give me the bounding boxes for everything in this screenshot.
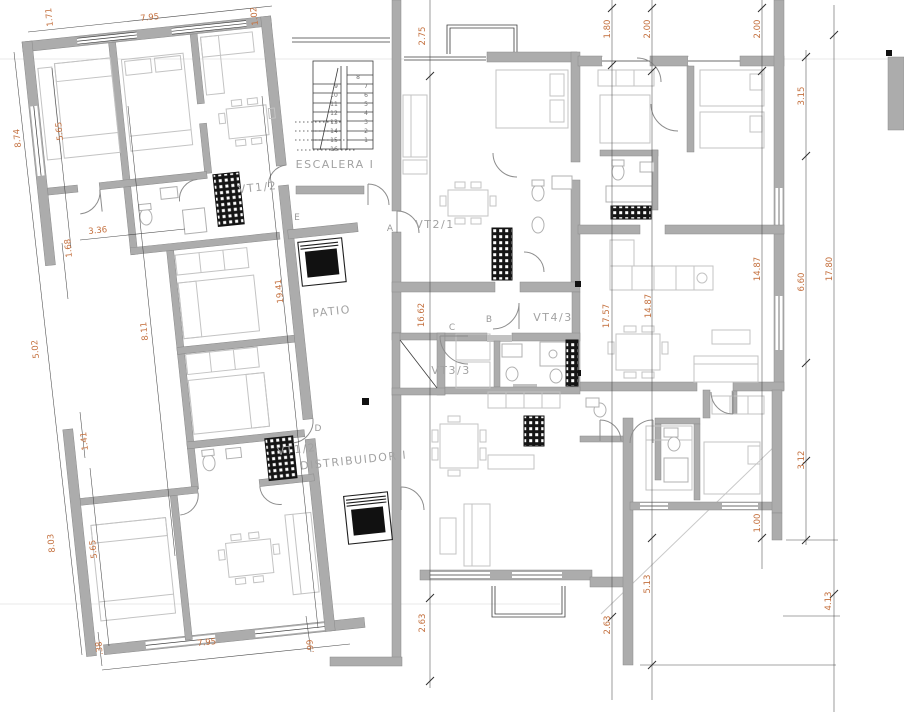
dimension-label: 5.65: [88, 539, 100, 559]
furniture-upper-unit: [36, 30, 277, 166]
dimension-label: 1.68: [63, 238, 75, 258]
dimension-label: 8.03: [46, 533, 58, 553]
stair-number: 9: [334, 83, 338, 90]
stair-number: 13: [330, 119, 338, 126]
dimension-label: 1.80: [603, 20, 613, 39]
dimension-label: 7.95: [140, 12, 160, 24]
stair-number: 8: [356, 74, 360, 81]
stair-number: 3: [364, 119, 368, 126]
room-label-vt12-upper: VT1/2: [237, 179, 278, 196]
kitchen-appliances-top-right: [611, 206, 651, 219]
door-letter-e: E: [294, 213, 300, 223]
dimension-label: 3.36: [88, 225, 108, 237]
dimension-label: 3.12: [797, 451, 807, 470]
stair-number: 2: [364, 128, 368, 135]
dimension-label: 2.00: [643, 20, 653, 39]
dimension-label: 8.11: [139, 321, 151, 341]
dimension-label: 7.95: [197, 637, 217, 649]
dimension-label: 1.71: [44, 7, 56, 27]
dimension-label: 2.00: [753, 20, 763, 39]
stair-number: 6: [364, 92, 368, 99]
stair-numbers: 8 7 6 5 4 3 2 1 9 10 11 12 13 14 15 16: [330, 74, 368, 153]
right-wing-furniture: [403, 70, 764, 566]
dimension-label: 1.41: [79, 431, 91, 451]
dimension-label: 17.80: [825, 257, 835, 281]
stair-number: 12: [330, 110, 338, 117]
dimension-label: 1.02: [249, 6, 261, 26]
stair-number: 5: [364, 101, 368, 108]
dimension-label: 5.02: [30, 339, 42, 359]
dimension-label: 14.87: [753, 257, 763, 281]
bath-bottom-centre: [586, 398, 606, 417]
dimension-label: 1.00: [753, 514, 763, 533]
bath-lower-unit: [202, 446, 243, 471]
dimension-label: 19.41: [274, 279, 286, 304]
dimension-label: 5.65: [54, 121, 66, 141]
dimension-label: 8.74: [12, 128, 24, 148]
room-label-vt43: VT4/3: [533, 311, 572, 324]
bath-vt33: [502, 342, 566, 383]
bath-top-right: [606, 160, 654, 202]
stair-number: 16: [330, 146, 338, 153]
stair-number: 14: [330, 128, 338, 135]
door-letter-b: B: [486, 315, 492, 325]
dimension-label: 2.63: [418, 614, 428, 633]
central-core: [288, 0, 445, 666]
dimension-label: 2.75: [418, 27, 428, 46]
kitchen-appliances-upper: [213, 172, 244, 226]
dimension-label: .38: [94, 641, 105, 656]
bath-bottom-right: [664, 428, 688, 482]
stair-number: 10: [330, 92, 338, 99]
dimension-label: 6.60: [797, 273, 807, 292]
floor-plan-canvas: 8 7 6 5 4 3 2 1 9 10 11 12 13 14 15 16: [0, 0, 904, 714]
dimension-label: .99: [305, 639, 316, 654]
door-letter-a: A: [387, 224, 394, 234]
furniture-lower-unit: [91, 502, 320, 620]
stair-number: 4: [364, 110, 368, 117]
door-letter-d: D: [315, 424, 322, 434]
dimension-label: 3.15: [797, 87, 807, 106]
bath-vt21: [532, 176, 572, 233]
door-letter-c: C: [449, 323, 455, 333]
left-wing: [22, 13, 365, 657]
stair-number: 15: [330, 137, 338, 144]
duct-vt33: [566, 340, 578, 386]
room-label-patio: PATIO: [312, 303, 352, 320]
stair-number: 1: [364, 137, 368, 144]
dimension-label: 2.63: [603, 616, 613, 635]
kitchen-appliances-vt21: [492, 228, 512, 280]
dimension-label: 16.62: [417, 303, 427, 327]
room-label-vt21: VT2/1: [415, 218, 454, 231]
dimension-label: 14.87: [644, 294, 654, 318]
stairwell: 8 7 6 5 4 3 2 1 9 10 11 12 13 14 15 16: [292, 38, 390, 205]
dimension-label: 17.57: [602, 304, 612, 328]
dimension-label: 4.13: [824, 592, 834, 611]
stair-number: 7: [364, 83, 368, 90]
elevator-icon: [344, 492, 393, 544]
dimension-label: 5.13: [643, 575, 653, 594]
room-label-vt33: VT3/3: [431, 364, 470, 377]
elevator-icon: [298, 238, 346, 286]
room-label-escalera: ESCALERA I: [296, 158, 375, 171]
stair-number: 11: [330, 101, 338, 108]
kitchen-appliances-bottom: [524, 416, 544, 446]
